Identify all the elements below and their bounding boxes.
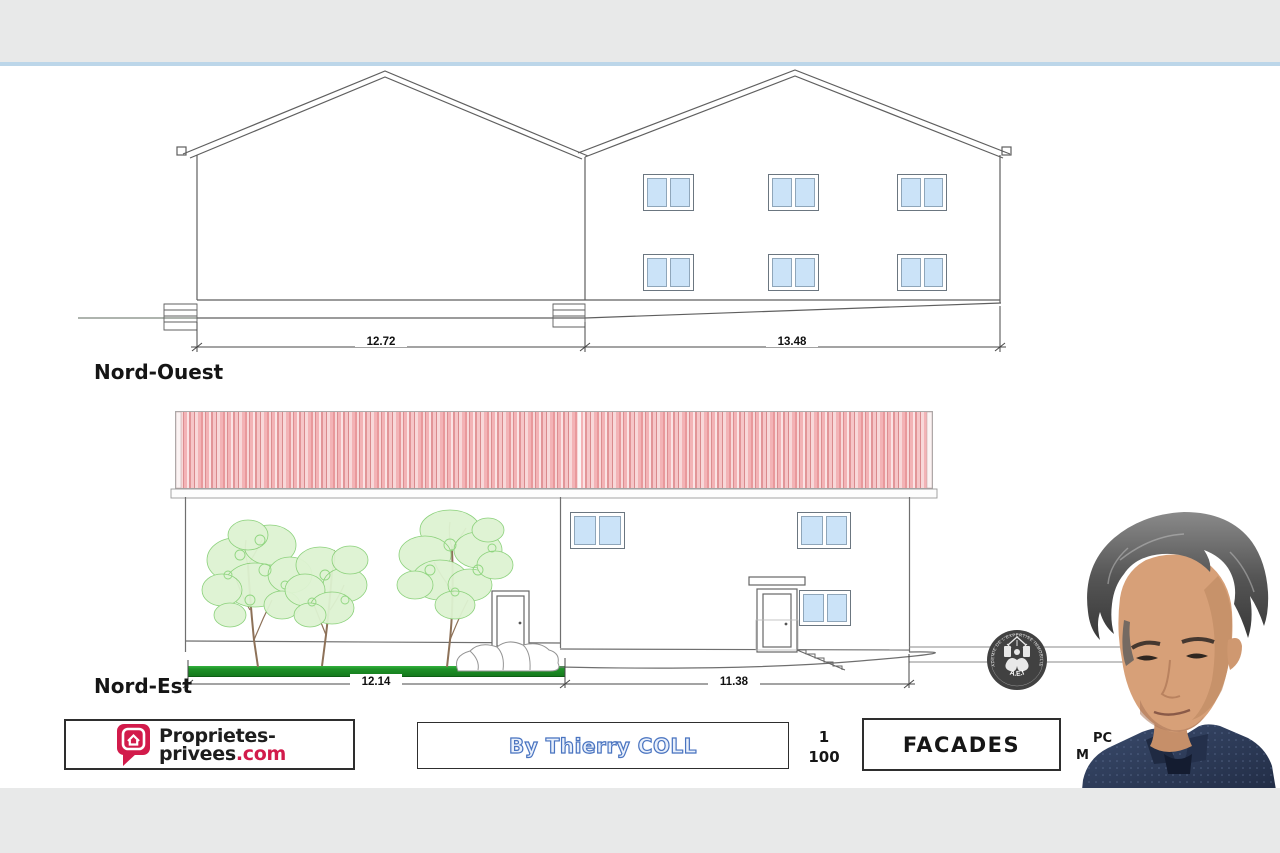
nord-est-label: Nord-Est	[94, 674, 192, 698]
tree	[285, 546, 368, 666]
green-hedge-bar	[188, 666, 565, 677]
window-pane	[772, 178, 792, 207]
svg-text:A.E.I: A.E.I	[1009, 669, 1026, 677]
brand-name: privees	[159, 743, 236, 765]
window-pane	[670, 178, 690, 207]
window-pane	[924, 258, 944, 287]
svg-text:ACADEMIE DE L'EXPERTISE IMMOBI: ACADEMIE DE L'EXPERTISE IMMOBILIERE	[0, 0, 1044, 667]
dim-no-right: 13.48	[778, 336, 807, 348]
window-pane	[647, 258, 667, 287]
window	[570, 512, 625, 549]
brand-line2: privees.com	[159, 745, 286, 763]
dimension-labels: 12.72 13.48 12.14 11.38	[350, 334, 818, 688]
window-pane	[647, 178, 667, 207]
drawing-title: FACADES	[903, 733, 1020, 757]
scale-numerator: 1	[819, 728, 829, 746]
window-pane	[901, 258, 921, 287]
window-pane	[670, 258, 690, 287]
entry-door-left	[492, 591, 529, 651]
drawing-title-box: FACADES	[862, 718, 1061, 771]
gutter-box	[1002, 147, 1011, 155]
tiled-roof-band	[175, 411, 933, 489]
dim-no-left: 12.72	[367, 336, 396, 348]
window-pane	[801, 516, 823, 545]
author-box: By Thierry COLL	[417, 722, 789, 769]
roof-fascia	[171, 489, 937, 498]
window	[897, 254, 947, 291]
scale-indicator: 1 100	[800, 723, 848, 771]
tree	[202, 520, 312, 667]
window-pane	[795, 258, 815, 287]
dim-ne-right: 11.38	[720, 676, 749, 688]
stamp-pictogram	[1004, 637, 1030, 671]
window	[897, 174, 947, 211]
tree	[397, 510, 513, 667]
ear	[1227, 638, 1242, 670]
window-pane	[924, 178, 944, 207]
proprietes-privees-logo-icon	[116, 723, 152, 767]
window	[768, 174, 819, 211]
window	[643, 254, 694, 291]
window-pane	[827, 594, 848, 622]
author-name: By Thierry COLL	[509, 734, 697, 758]
dimension-lines	[182, 306, 1006, 688]
blue-separator-line	[0, 62, 1280, 66]
nord-ouest-label: Nord-Ouest	[94, 360, 223, 384]
window-pane	[772, 258, 792, 287]
entry-door-right	[749, 577, 805, 652]
window-pane	[803, 594, 824, 622]
window-pane	[599, 516, 621, 545]
bottom-gray-bar	[0, 788, 1280, 853]
window-pane	[795, 178, 815, 207]
stairs	[797, 650, 845, 670]
stamp-ring-text: ACADEMIE DE L'EXPERTISE IMMOBILIERE	[0, 0, 1044, 667]
window	[768, 254, 819, 291]
brand-text: Proprietes- privees.com	[159, 727, 286, 763]
window-pane	[826, 516, 848, 545]
window	[797, 512, 851, 549]
aei-stamp: ACADEMIE DE L'EXPERTISE IMMOBILIERE A.E.…	[0, 0, 1047, 690]
top-gray-bar	[0, 0, 1280, 62]
nord-ouest-elevation	[78, 70, 1011, 330]
window-pane	[574, 516, 596, 545]
dim-ne-left: 12.14	[362, 676, 391, 688]
window	[643, 174, 694, 211]
agent-photo	[1080, 500, 1280, 790]
facade-plan-page: 12.72 13.48 12.14 11.38 ACADEMIE DE L'EX…	[0, 0, 1280, 853]
scale-denominator: 100	[808, 748, 839, 766]
brand-box: Proprietes- privees.com	[64, 719, 355, 770]
door-lintel	[749, 577, 805, 585]
steps-hatch	[164, 304, 585, 330]
window	[799, 590, 851, 626]
gutter-box	[177, 147, 186, 155]
window-pane	[901, 178, 921, 207]
stamp-acronym: A.E.I	[1009, 669, 1026, 677]
brand-tld: .com	[236, 743, 286, 765]
